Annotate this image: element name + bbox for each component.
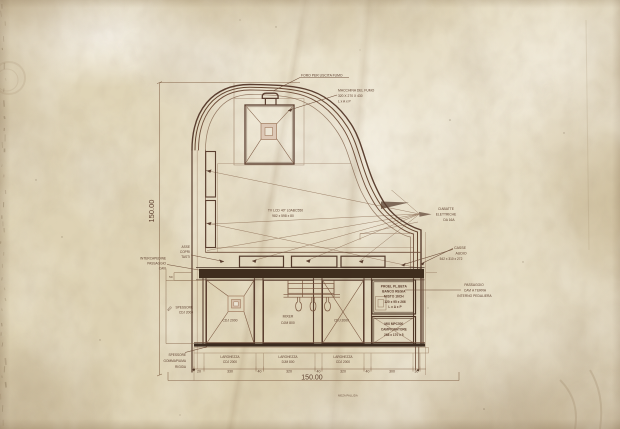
svg-text:RIGIDA: RIGIDA bbox=[175, 365, 187, 369]
svg-text:MIX MPC500: MIX MPC500 bbox=[384, 322, 403, 326]
svg-text:CDJ 2000: CDJ 2000 bbox=[179, 311, 193, 315]
svg-text:FORO PER USCITA FUMO: FORO PER USCITA FUMO bbox=[301, 74, 343, 78]
svg-text:AUDIO: AUDIO bbox=[455, 252, 466, 256]
svg-text:CDJ 2000: CDJ 2000 bbox=[336, 360, 350, 364]
svg-text:MEZA PALLIDA: MEZA PALLIDA bbox=[338, 394, 358, 398]
svg-text:ELETTRICHE: ELETTRICHE bbox=[436, 213, 457, 217]
svg-text:INTERNO PEDALIERA: INTERNO PEDALIERA bbox=[457, 294, 492, 298]
svg-text:PASSAGGIO: PASSAGGIO bbox=[464, 283, 484, 287]
svg-text:BANCO REGIA: BANCO REGIA bbox=[382, 290, 406, 294]
svg-text:330: 330 bbox=[227, 370, 233, 374]
svg-text:40: 40 bbox=[317, 370, 321, 374]
svg-text:300: 300 bbox=[389, 370, 395, 374]
svg-text:CAMPIONATORE: CAMPIONATORE bbox=[381, 328, 407, 332]
svg-text:CAVI A TERRA: CAVI A TERRA bbox=[464, 289, 487, 293]
svg-text:320 X 270 X 430: 320 X 270 X 430 bbox=[338, 94, 363, 98]
svg-text:CDJ 2000: CDJ 2000 bbox=[334, 319, 349, 323]
svg-text:CIABATTE: CIABATTE bbox=[438, 207, 455, 211]
svg-text:L x A x P: L x A x P bbox=[388, 305, 402, 309]
svg-text:TASTI: TASTI bbox=[181, 255, 190, 259]
svg-text:CAVI: CAVI bbox=[159, 267, 166, 271]
svg-text:CDJ 2000: CDJ 2000 bbox=[223, 360, 237, 364]
svg-text:COPRI: COPRI bbox=[180, 250, 190, 254]
svg-text:TV LCD 40" L0ABC550: TV LCD 40" L0ABC550 bbox=[268, 208, 303, 212]
svg-text:GOMMAPIUMA: GOMMAPIUMA bbox=[164, 359, 187, 363]
svg-text:268 x 170 x 5: 268 x 170 x 5 bbox=[384, 333, 404, 337]
svg-text:LARGHEZZA: LARGHEZZA bbox=[220, 355, 240, 359]
svg-text:L x A x P: L x A x P bbox=[338, 100, 352, 104]
svg-text:150.00: 150.00 bbox=[147, 200, 156, 223]
svg-text:PASSAGGIO: PASSAGGIO bbox=[147, 262, 166, 266]
svg-text:MISTO 16CH: MISTO 16CH bbox=[384, 295, 404, 299]
svg-text:MIXER: MIXER bbox=[283, 315, 294, 319]
svg-text:40: 40 bbox=[366, 370, 370, 374]
svg-text:SPESSORE: SPESSORE bbox=[168, 353, 186, 357]
svg-text:DJM 800: DJM 800 bbox=[281, 321, 295, 325]
svg-text:CASSE: CASSE bbox=[454, 246, 467, 250]
svg-text:120 x 95 x 266: 120 x 95 x 266 bbox=[384, 300, 405, 304]
svg-text:LARGHEZZA: LARGHEZZA bbox=[333, 355, 353, 359]
svg-text:320: 320 bbox=[286, 370, 292, 374]
svg-text:150.00: 150.00 bbox=[301, 375, 323, 382]
svg-text:DA 16A: DA 16A bbox=[443, 218, 455, 222]
svg-text:982 x 598 x 80: 982 x 598 x 80 bbox=[272, 214, 294, 218]
svg-text:PROEL PL.BETA: PROEL PL.BETA bbox=[381, 285, 408, 289]
svg-text:ASSE: ASSE bbox=[181, 245, 190, 249]
svg-text:LARGHEZZA: LARGHEZZA bbox=[278, 355, 298, 359]
svg-text:40: 40 bbox=[258, 370, 262, 374]
svg-text:CDJ 2000: CDJ 2000 bbox=[222, 319, 237, 323]
svg-text:SPESSORE: SPESSORE bbox=[175, 306, 193, 310]
svg-text:542 x 310 x 272: 542 x 310 x 272 bbox=[440, 257, 463, 261]
svg-text:INTERCAPEDINE: INTERCAPEDINE bbox=[140, 257, 166, 261]
svg-text:50: 50 bbox=[169, 275, 173, 279]
svg-text:DJM 800: DJM 800 bbox=[282, 360, 295, 364]
svg-text:20: 20 bbox=[197, 370, 201, 374]
svg-text:30: 30 bbox=[415, 370, 419, 374]
svg-text:MACCHINA DEL FUMO: MACCHINA DEL FUMO bbox=[338, 89, 375, 93]
svg-text:320: 320 bbox=[340, 370, 346, 374]
